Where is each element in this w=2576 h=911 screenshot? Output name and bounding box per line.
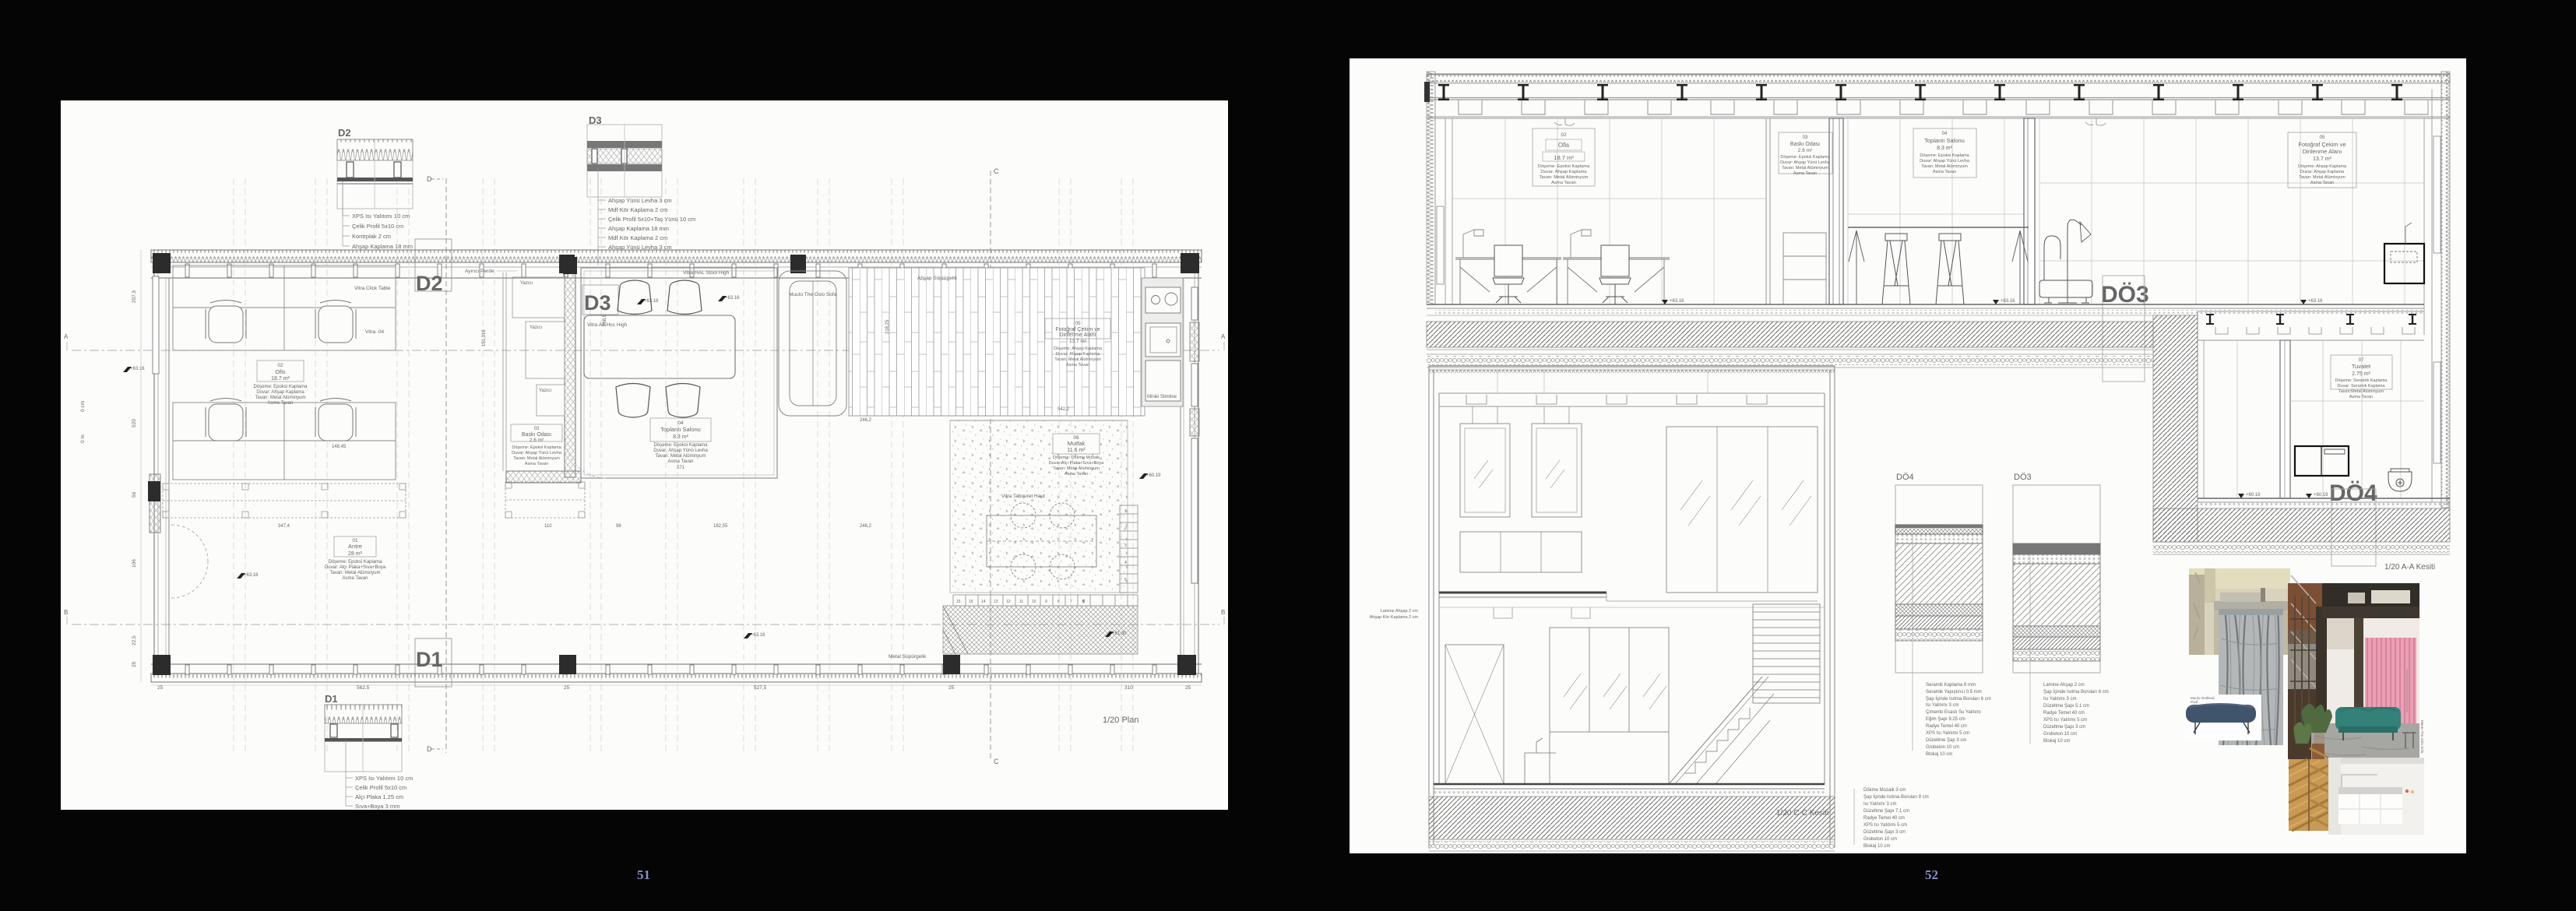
svg-text:310: 310: [1124, 685, 1133, 691]
svg-text:Asma Tavan: Asma Tavan: [343, 576, 368, 581]
svg-text:Asma Tavan: Asma Tavan: [1066, 363, 1089, 368]
svg-text:Fotoğraf Çekim ve: Fotoğraf Çekim ve: [2298, 141, 2345, 148]
svg-text:Baskı Odası: Baskı Odası: [522, 432, 551, 438]
svg-text:05: 05: [1075, 321, 1081, 326]
svg-text:11.6 m²: 11.6 m²: [1067, 448, 1086, 453]
svg-text:02: 02: [1561, 132, 1567, 138]
svg-text:Isı Yalıtımı 3 cm: Isı Yalıtımı 3 cm: [1926, 703, 1958, 708]
svg-text:Antre: Antre: [348, 543, 362, 550]
svg-text:Tavan:Metal Alüminyum: Tavan:Metal Alüminyum: [2338, 389, 2384, 394]
svg-text:Duvar: Ahşap Yünü Levha: Duvar: Ahşap Yünü Levha: [512, 451, 562, 455]
svg-text:14: 14: [981, 600, 986, 604]
svg-text:Çelik Profil 5x10 cm: Çelik Profil 5x10 cm: [352, 223, 403, 230]
svg-text:Tavan: Metal Alüminyum: Tavan: Metal Alüminyum: [1054, 357, 1101, 362]
svg-text:XPS Isı Yalıtımı 10 cm: XPS Isı Yalıtımı 10 cm: [355, 775, 413, 782]
svg-text:Blokaj 10 cm: Blokaj 10 cm: [2043, 739, 2070, 744]
svg-text:Döşeme: Dökme Mozaik: Döşeme: Dökme Mozaik: [1053, 455, 1100, 460]
svg-text:3: 3: [1124, 543, 1127, 548]
svg-text:Seramik Yapıştırıcı 0.5 mm: Seramik Yapıştırıcı 0.5 mm: [1926, 690, 1982, 695]
svg-text:8.3 m²: 8.3 m²: [1937, 146, 1953, 151]
svg-text:542,2: 542,2: [1057, 407, 1070, 412]
svg-text:A: A: [64, 333, 69, 340]
svg-text:Asma Tavan: Asma Tavan: [1793, 171, 1817, 176]
svg-text:Çelik Profil 5x10 cm: Çelik Profil 5x10 cm: [355, 784, 406, 791]
svg-text:22,5: 22,5: [132, 635, 137, 645]
svg-text:Çelik Profil 5x10+Taş Yünü 10: Çelik Profil 5x10+Taş Yünü 10 cm: [608, 216, 695, 223]
svg-text:Ahşap Yünü Levha 3 cm: Ahşap Yünü Levha 3 cm: [608, 197, 672, 204]
svg-text:2.6 m²: 2.6 m²: [1798, 148, 1813, 153]
svg-text:18.7 m²: 18.7 m²: [271, 376, 290, 382]
svg-text:28 m²: 28 m²: [348, 551, 363, 557]
svg-text:Toplantı Salonu: Toplantı Salonu: [1924, 137, 1965, 144]
svg-text:Duvar: Ahşap Yünü Levha: Duvar: Ahşap Yünü Levha: [1780, 160, 1831, 165]
svg-text:Pouf: Pouf: [2191, 700, 2198, 704]
svg-text:+63.16: +63.16: [644, 299, 659, 304]
svg-text:25: 25: [948, 685, 955, 691]
svg-text:Duvar: Ahşap Kaplama: Duvar: Ahşap Kaplama: [1540, 170, 1587, 174]
svg-text:Duvar: Seramik Kaplama: Duvar: Seramik Kaplama: [2337, 384, 2385, 389]
svg-text:13.7 m²: 13.7 m²: [1069, 339, 1087, 344]
svg-text:2.6 m²: 2.6 m²: [530, 438, 544, 443]
svg-text:2: 2: [1124, 526, 1127, 531]
svg-text:XPS Isı Yalıtımı 5 cm: XPS Isı Yalıtımı 5 cm: [1863, 823, 1907, 828]
svg-text:D1: D1: [416, 648, 443, 671]
svg-text:148,45: 148,45: [332, 445, 347, 449]
svg-text:Ahşap Kaplama 18 mm: Ahşap Kaplama 18 mm: [608, 225, 669, 232]
svg-text:1/20 Plan: 1/20 Plan: [1103, 716, 1138, 725]
svg-text:XPS Isı Yalıtımı 10 cm: XPS Isı Yalıtımı 10 cm: [352, 213, 410, 220]
svg-text:15: 15: [969, 600, 973, 604]
svg-text:Vitra Tabouret Haut: Vitra Tabouret Haut: [1001, 494, 1045, 499]
svg-text:11: 11: [1019, 600, 1023, 604]
svg-text:13.7 m²: 13.7 m²: [2313, 157, 2331, 162]
svg-text:Seramik Kaplama 8 mm: Seramik Kaplama 8 mm: [1926, 683, 1976, 688]
svg-text:15: 15: [956, 600, 961, 604]
svg-text:25: 25: [157, 685, 164, 691]
svg-text:Ahşap Kaplama 18 mm: Ahşap Kaplama 18 mm: [352, 243, 413, 250]
svg-text:Blokaj 10 cm: Blokaj 10 cm: [1926, 752, 1952, 757]
svg-text:04: 04: [1942, 132, 1948, 136]
svg-text:DÖ3: DÖ3: [2014, 473, 2032, 482]
svg-text:Duvar: Ahşap Kaplama: Duvar: Ahşap Kaplama: [2300, 170, 2345, 174]
svg-text:98: 98: [616, 524, 621, 529]
svg-text:Döşeme: Epoksi Kaplama: Döşeme: Epoksi Kaplama: [512, 445, 561, 450]
svg-text:C: C: [994, 758, 999, 765]
svg-text:Fotoğraf Çekim ve: Fotoğraf Çekim ve: [1055, 327, 1100, 332]
svg-text:B: B: [1221, 609, 1225, 616]
svg-text:Düzeltme Şap 3 cm: Düzeltme Şap 3 cm: [1926, 738, 1966, 743]
svg-text:Dinlenme Alanı: Dinlenme Alanı: [1059, 332, 1096, 338]
svg-text:1/20 A-A Kesiti: 1/20 A-A Kesiti: [2384, 563, 2435, 572]
svg-text:D: D: [427, 745, 432, 753]
svg-text:Tuvalet: Tuvalet: [2352, 363, 2371, 370]
svg-text:Ayırıcı Perde: Ayırıcı Perde: [465, 269, 494, 274]
svg-text:05: 05: [2320, 135, 2325, 140]
svg-text:+63.16: +63.16: [751, 633, 765, 638]
svg-text:Yazıcı: Yazıcı: [520, 281, 533, 286]
svg-text:Toplantı Salonu: Toplantı Salonu: [660, 426, 701, 433]
svg-text:Duvar: Ahşap Kaplama: Duvar: Ahşap Kaplama: [1056, 352, 1100, 357]
svg-text:D1: D1: [325, 693, 338, 705]
svg-text:0 m: 0 m: [80, 434, 86, 443]
svg-text:5: 5: [1124, 578, 1127, 582]
svg-text:Radye Temel 40 cm: Radye Temel 40 cm: [2043, 711, 2085, 716]
svg-text:Ofis: Ofis: [1558, 142, 1569, 149]
svg-text:Sıva+Boya 3 mm: Sıva+Boya 3 mm: [355, 803, 399, 810]
svg-text:03: 03: [1803, 135, 1808, 140]
svg-text:Tavan: Metal Alüminyum: Tavan: Metal Alüminyum: [1540, 175, 1589, 180]
svg-text:246,2: 246,2: [860, 418, 872, 423]
svg-text:527,5: 527,5: [754, 685, 767, 691]
svg-text:Baskı Odası: Baskı Odası: [1790, 142, 1820, 147]
svg-text:8.3 m²: 8.3 m²: [673, 434, 689, 440]
svg-text:02: 02: [277, 363, 283, 368]
svg-text:13: 13: [994, 600, 998, 604]
svg-text:Döşeme: Epoksi Kaplama: Döşeme: Epoksi Kaplama: [1780, 155, 1830, 160]
svg-text:Muuto The Oslo Sofa: Muuto The Oslo Sofa: [2420, 720, 2424, 754]
svg-text:12: 12: [1006, 600, 1011, 604]
svg-text:Alçı Plaka 1.25 cm: Alçı Plaka 1.25 cm: [355, 793, 403, 800]
svg-text:1: 1: [1124, 509, 1127, 514]
svg-text:DÖ4: DÖ4: [1896, 473, 1914, 482]
svg-text:Çimento Esaslı Su Yalıtımı: Çimento Esaslı Su Yalıtımı: [1926, 710, 1981, 715]
svg-text:Duvar: Ahşap Kaplama: Duvar: Ahşap Kaplama: [256, 390, 304, 395]
svg-text:Döşeme: Epoksi Kaplama: Döşeme: Epoksi Kaplama: [253, 385, 308, 389]
svg-text:Düzeltme Şapı 3 cm: Düzeltme Şapı 3 cm: [1863, 830, 1906, 835]
svg-text:520: 520: [132, 419, 137, 427]
svg-text:+63.16: +63.16: [2001, 299, 2015, 304]
svg-text:Duvar: Alçı Plaka+Sıva+Boya: Duvar: Alçı Plaka+Sıva+Boya: [325, 565, 386, 570]
svg-text:Döşeme: Ahşap Kaplama: Döşeme: Ahşap Kaplama: [2298, 164, 2347, 169]
svg-text:Duvar: Ahşap Yünü Levha: Duvar: Ahşap Yünü Levha: [653, 448, 708, 453]
svg-text:Düzeltme Şapı 5.1 cm: Düzeltme Şapı 5.1 cm: [2043, 704, 2089, 709]
svg-text:Ahşap Süpürgelik: Ahşap Süpürgelik: [917, 276, 958, 281]
svg-text:Tavan: Metal Alüminyum: Tavan: Metal Alüminyum: [655, 454, 706, 459]
svg-text:+63.16: +63.16: [1670, 299, 1684, 304]
svg-text:2.75 m²: 2.75 m²: [2352, 371, 2370, 377]
svg-text:Tavan: Metal Alüminyum: Tavan: Metal Alüminyum: [513, 456, 560, 461]
svg-text:8: 8: [1057, 600, 1060, 604]
svg-text:151,016: 151,016: [482, 329, 487, 346]
svg-text:347,4: 347,4: [278, 524, 290, 529]
svg-text:1/20 C-C Kesiti: 1/20 C-C Kesiti: [1776, 809, 1828, 818]
svg-text:Muuto The Oslo Sofa: Muuto The Oslo Sofa: [789, 292, 837, 297]
svg-text:XPS Isı Yalıtımı 5 cm: XPS Isı Yalıtımı 5 cm: [1926, 731, 1969, 736]
svg-text:Asma Tavan: Asma Tavan: [1065, 472, 1088, 477]
svg-text:Metal Süpürgelik: Metal Süpürgelik: [889, 654, 927, 660]
svg-text:XPS Isı Yalıtımı 5 cm: XPS Isı Yalıtımı 5 cm: [2043, 718, 2087, 723]
svg-text:03: 03: [534, 427, 540, 431]
svg-text:04: 04: [677, 420, 684, 426]
svg-text:10: 10: [1032, 600, 1036, 604]
svg-text:Döşeme: Seramik Kaplama: Döşeme: Seramik Kaplama: [2335, 378, 2388, 383]
svg-text:+60.19: +60.19: [2314, 493, 2328, 498]
svg-text:Mdf Kör Kaplama 2 cm: Mdf Kör Kaplama 2 cm: [608, 206, 667, 213]
svg-text:562,5: 562,5: [357, 685, 370, 691]
svg-text:Düzeltme Şapı 3 cm: Düzeltme Şapı 3 cm: [2043, 725, 2085, 730]
svg-text:+63.16: +63.16: [725, 296, 740, 301]
svg-text:Döşeme: Ahşap Kaplama: Döşeme: Ahşap Kaplama: [1054, 346, 1103, 351]
svg-text:Döşeme: Epoksi Kaplama: Döşeme: Epoksi Kaplama: [1920, 153, 1969, 158]
svg-text:Isı Yalıtımı 3 cm: Isı Yalıtımı 3 cm: [2043, 697, 2076, 702]
svg-text:Döşeme: Epoksi Kaplama: Döşeme: Epoksi Kaplama: [653, 443, 708, 448]
svg-text:Kontrplak 2 cm: Kontrplak 2 cm: [352, 233, 391, 240]
svg-text:25: 25: [132, 661, 137, 667]
svg-text:Ahşap Kör Kaplama 2 cm: Ahşap Kör Kaplama 2 cm: [1370, 615, 1419, 620]
svg-text:207,5: 207,5: [132, 290, 137, 303]
svg-text:Asma Tavan: Asma Tavan: [2349, 395, 2373, 399]
svg-text:0 cm: 0 cm: [80, 401, 86, 412]
svg-text:Asma Tavan: Asma Tavan: [2310, 181, 2334, 185]
svg-text:Yazıcı: Yazıcı: [539, 389, 552, 393]
svg-text:Blokaj 10 cm: Blokaj 10 cm: [1863, 844, 1890, 849]
svg-text:Tavan: Metal Alüminyum: Tavan: Metal Alüminyum: [1921, 164, 1968, 169]
svg-text:Asma Tavan: Asma Tavan: [525, 462, 548, 466]
svg-text:268,5: 268,5: [603, 314, 607, 326]
svg-text:7: 7: [1070, 600, 1072, 604]
svg-text:182,55: 182,55: [713, 524, 728, 529]
svg-text:9: 9: [1045, 600, 1047, 604]
svg-text:+63.16: +63.16: [2308, 299, 2323, 304]
svg-text:Asma Tavan: Asma Tavan: [1551, 181, 1576, 185]
svg-text:Duvar:Alçı Plaka+Sıva+Boya: Duvar:Alçı Plaka+Sıva+Boya: [1049, 461, 1105, 466]
svg-text:Tavan: Metal Alüminyum: Tavan: Metal Alüminyum: [1053, 466, 1100, 471]
svg-text:4: 4: [1124, 561, 1127, 565]
svg-text:D: D: [427, 175, 432, 183]
svg-text:Vitra .04: Vitra .04: [365, 329, 384, 335]
svg-text:+63.16: +63.16: [130, 367, 145, 371]
svg-text:D2: D2: [416, 272, 443, 295]
svg-text:D2: D2: [338, 127, 351, 139]
svg-text:Grobeton 10 cm: Grobeton 10 cm: [1863, 837, 1897, 842]
svg-text:C: C: [994, 167, 999, 175]
svg-text:Grobeton 10 cm: Grobeton 10 cm: [1926, 745, 1959, 750]
svg-text:Duvar: Ahşap Yünü Levha: Duvar: Ahşap Yünü Levha: [1920, 159, 1970, 164]
svg-text:Lamine Ahşap 2 cm: Lamine Ahşap 2 cm: [2043, 683, 2085, 688]
svg-text:25: 25: [1185, 685, 1191, 691]
svg-text:Grobeton 10 cm: Grobeton 10 cm: [2043, 732, 2077, 737]
svg-text:Lamine Ahşap 2 cm: Lamine Ahşap 2 cm: [1381, 609, 1419, 614]
svg-text:Şap İçinde Isıtma Boruları 6 c: Şap İçinde Isıtma Boruları 6 cm: [2043, 689, 2109, 695]
svg-text:Miniki Slimline: Miniki Slimline: [1147, 395, 1177, 399]
svg-text:Tavan: Metal Alüminyum: Tavan: Metal Alüminyum: [1782, 166, 1828, 171]
svg-text:Vitra HAL Stool High: Vitra HAL Stool High: [683, 270, 730, 276]
svg-text:Şap İçinde Isıtma Boruları 8 c: Şap İçinde Isıtma Boruları 8 cm: [1863, 794, 1929, 800]
svg-text:Yazıcı: Yazıcı: [530, 325, 543, 330]
svg-text:25: 25: [564, 685, 570, 691]
svg-text:Radye Temel 40 cm: Radye Temel 40 cm: [1926, 724, 1967, 729]
svg-text:271: 271: [677, 466, 685, 470]
svg-text:Döşeme: Epoksi Kaplama: Döşeme: Epoksi Kaplama: [328, 560, 382, 565]
svg-text:Radye Temel 40 cm: Radye Temel 40 cm: [1863, 816, 1905, 821]
svg-text:Tavan: Metal Alüminyum: Tavan: Metal Alüminyum: [2299, 175, 2345, 180]
svg-text:+61.30: +61.30: [1112, 631, 1127, 636]
svg-text:B: B: [64, 609, 68, 616]
svg-text:+60.19: +60.19: [2246, 493, 2261, 498]
svg-text:Mutfak: Mutfak: [1068, 440, 1086, 447]
svg-text:106: 106: [132, 559, 137, 568]
svg-text:+63.16: +63.16: [244, 573, 259, 578]
svg-text:+60.19: +60.19: [1146, 473, 1161, 478]
svg-text:Düzeltme Şapı 7.1 cm: Düzeltme Şapı 7.1 cm: [1863, 809, 1909, 814]
svg-text:A: A: [1221, 333, 1226, 340]
svg-text:Asma Tavan: Asma Tavan: [268, 401, 294, 406]
svg-text:Dinlenme Alanı: Dinlenme Alanı: [2303, 148, 2342, 155]
svg-text:Döşeme: Epoksi Kaplama: Döşeme: Epoksi Kaplama: [1538, 164, 1590, 169]
svg-text:Asma Tavan: Asma Tavan: [668, 459, 694, 464]
svg-text:Dökme Mozaik 3 cm: Dökme Mozaik 3 cm: [1863, 788, 1906, 793]
svg-text:Tavan: Metal Alüminyum: Tavan: Metal Alüminyum: [255, 396, 305, 400]
svg-text:Şap İçinde Isıtma Boruları 6 c: Şap İçinde Isıtma Boruları 6 cm: [1926, 696, 1991, 702]
svg-text:Vitra Click Table: Vitra Click Table: [354, 286, 391, 291]
svg-text:D3: D3: [584, 291, 611, 315]
svg-text:18.7 m²: 18.7 m²: [1554, 154, 1574, 161]
svg-text:Mdf Kör Kaplama 2 cm: Mdf Kör Kaplama 2 cm: [608, 234, 667, 241]
svg-text:6: 6: [1082, 600, 1085, 604]
svg-text:246,2: 246,2: [860, 524, 872, 529]
svg-text:Ofis: Ofis: [275, 368, 286, 375]
svg-text:DÖ3: DÖ3: [2101, 282, 2149, 308]
svg-text:Asma Tavan: Asma Tavan: [1933, 170, 1956, 174]
svg-text:110: 110: [544, 524, 552, 529]
svg-text:56: 56: [132, 491, 137, 498]
svg-text:Isı Yalıtımı 3 cm: Isı Yalıtımı 3 cm: [1863, 802, 1896, 807]
svg-text:Eğim Şapı 9.25 cm: Eğim Şapı 9.25 cm: [1926, 717, 1965, 722]
svg-text:Tavan: Metal Alüminyum: Tavan: Metal Alüminyum: [329, 571, 380, 575]
svg-text:218,25: 218,25: [885, 319, 890, 334]
